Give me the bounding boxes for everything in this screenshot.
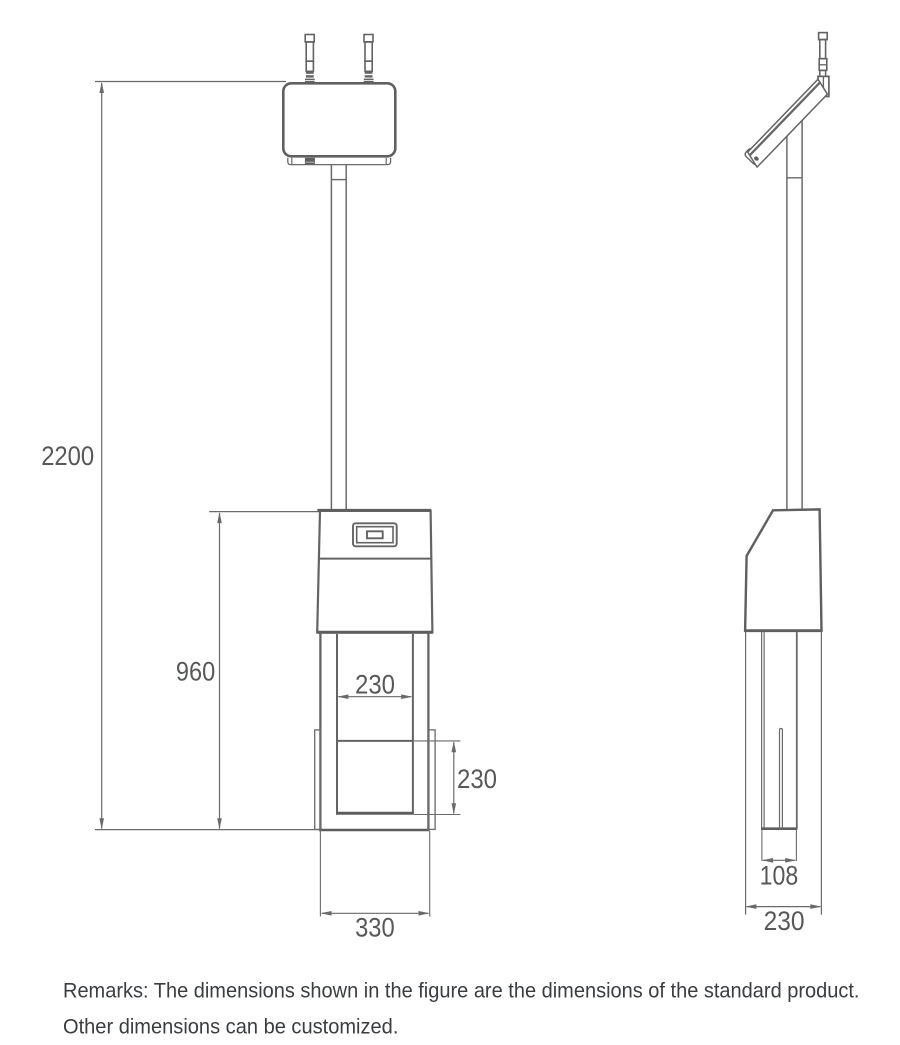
svg-text:230: 230 bbox=[457, 764, 497, 794]
svg-text:330: 330 bbox=[355, 913, 395, 943]
svg-text:Remarks: The dimensions shown: Remarks: The dimensions shown in the fig… bbox=[63, 980, 860, 1003]
svg-text:230: 230 bbox=[764, 906, 805, 936]
svg-text:Other dimensions can be custom: Other dimensions can be customized. bbox=[63, 1016, 398, 1039]
svg-text:2200: 2200 bbox=[41, 441, 94, 471]
svg-text:960: 960 bbox=[176, 657, 215, 687]
svg-text:108: 108 bbox=[760, 860, 799, 890]
svg-text:230: 230 bbox=[355, 670, 395, 700]
